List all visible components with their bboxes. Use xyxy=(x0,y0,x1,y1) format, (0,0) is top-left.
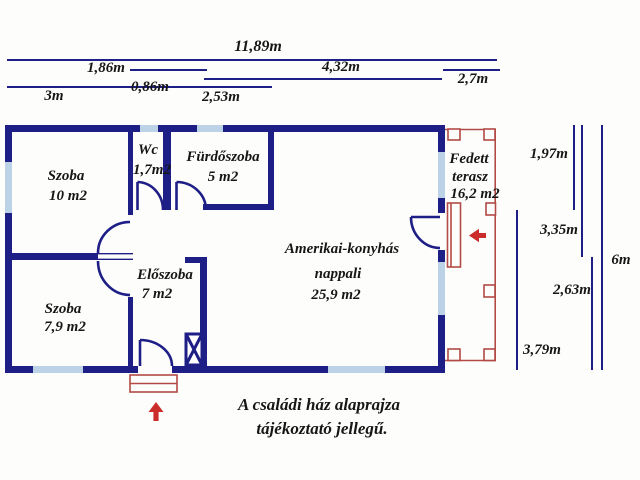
entrance-steps xyxy=(130,375,177,392)
dim-label-1-97m: 1,97m xyxy=(530,146,568,163)
terrace-post xyxy=(448,349,460,361)
window-right-wall-1 xyxy=(438,152,445,198)
dim-label-3-35m: 3,35m xyxy=(540,222,578,239)
room-label-nappali-line1: Amerikai-konyhás xyxy=(285,241,399,258)
door-terrace xyxy=(411,217,440,248)
dim-label-6m: 6m xyxy=(611,252,630,269)
entrance-arrow-up-icon xyxy=(149,402,164,421)
door-entrance xyxy=(140,340,172,366)
room-label-szoba-1-name: Szoba xyxy=(48,168,85,185)
room-label-nappali-area: 25,9 m2 xyxy=(311,287,360,304)
door-wc xyxy=(138,182,164,210)
dim-label-4-32m: 4,32m xyxy=(322,59,360,76)
dim-label-0-86m: 0,86m xyxy=(131,79,169,96)
wall-openings xyxy=(138,213,445,373)
chimney-crossed-box-icon xyxy=(186,334,202,365)
wall-bathroom-bottom xyxy=(203,204,274,210)
terrace-post xyxy=(484,285,495,297)
terrace-arrow-left-icon xyxy=(469,229,486,242)
room-label-terasz-line1: Fedett xyxy=(449,151,488,168)
room-label-eloszoba-area: 7 m2 xyxy=(142,286,172,303)
window-left-wall xyxy=(5,162,12,213)
wall-bedroom2-right xyxy=(128,297,133,366)
window-right-wall-2 xyxy=(438,262,445,315)
door-bedroom1 xyxy=(98,222,130,253)
room-label-eloszoba-name: Előszoba xyxy=(137,267,193,284)
room-label-wc-name: Wc xyxy=(138,142,158,159)
terrace-post xyxy=(484,349,495,361)
room-label-szoba-2-name: Szoba xyxy=(45,301,82,318)
dim-label-3-79m: 3,79m xyxy=(523,342,561,359)
room-label-furdoszoba-area: 5 m2 xyxy=(208,169,238,186)
dim-label-2-7m: 2,7m xyxy=(458,71,488,88)
door-thresholds xyxy=(98,254,133,260)
terrace-door-frame xyxy=(448,203,461,267)
dim-label-2-63m: 2,63m xyxy=(553,282,591,299)
door-bedroom2 xyxy=(98,261,130,295)
door-bathroom xyxy=(177,182,207,210)
dim-label-11-89m: 11,89m xyxy=(234,38,282,55)
window-top-wall-1 xyxy=(140,125,158,132)
window-bottom-wall-2 xyxy=(328,366,385,373)
dim-label-3m: 3m xyxy=(44,88,63,105)
wall-between-bedrooms xyxy=(12,253,98,260)
wall-top xyxy=(7,125,445,132)
dim-label-2-53m: 2,53m xyxy=(202,89,240,106)
terrace-post xyxy=(486,203,496,215)
window-top-wall-2 xyxy=(197,125,223,132)
room-label-wc-area: 1,7m2 xyxy=(133,162,171,179)
room-label-furdoszoba-name: Fürdőszoba xyxy=(186,149,259,166)
terrace-post xyxy=(484,129,495,140)
room-label-nappali-line2: nappali xyxy=(315,266,362,283)
floor-plan-page: 11,89m 1,86m 4,32m 2,7m 0,86m 3m 2,53m 1… xyxy=(0,0,640,480)
note-line-2: tájékoztató jellegű. xyxy=(256,420,387,437)
note-line-1: A családi ház alaprajza xyxy=(238,396,400,413)
room-label-terasz-area: 16,2 m2 xyxy=(450,186,499,203)
window-bottom-wall-1 xyxy=(33,366,83,373)
wall-bathroom-right xyxy=(268,132,274,210)
terrace-post xyxy=(448,129,460,140)
room-label-terasz-line2: terasz xyxy=(452,169,488,186)
room-label-szoba-1-area: 10 m2 xyxy=(49,188,87,205)
dim-label-1-86m: 1,86m xyxy=(87,60,125,77)
room-label-szoba-2-area: 7,9 m2 xyxy=(44,319,86,336)
dimension-lines xyxy=(7,60,602,370)
